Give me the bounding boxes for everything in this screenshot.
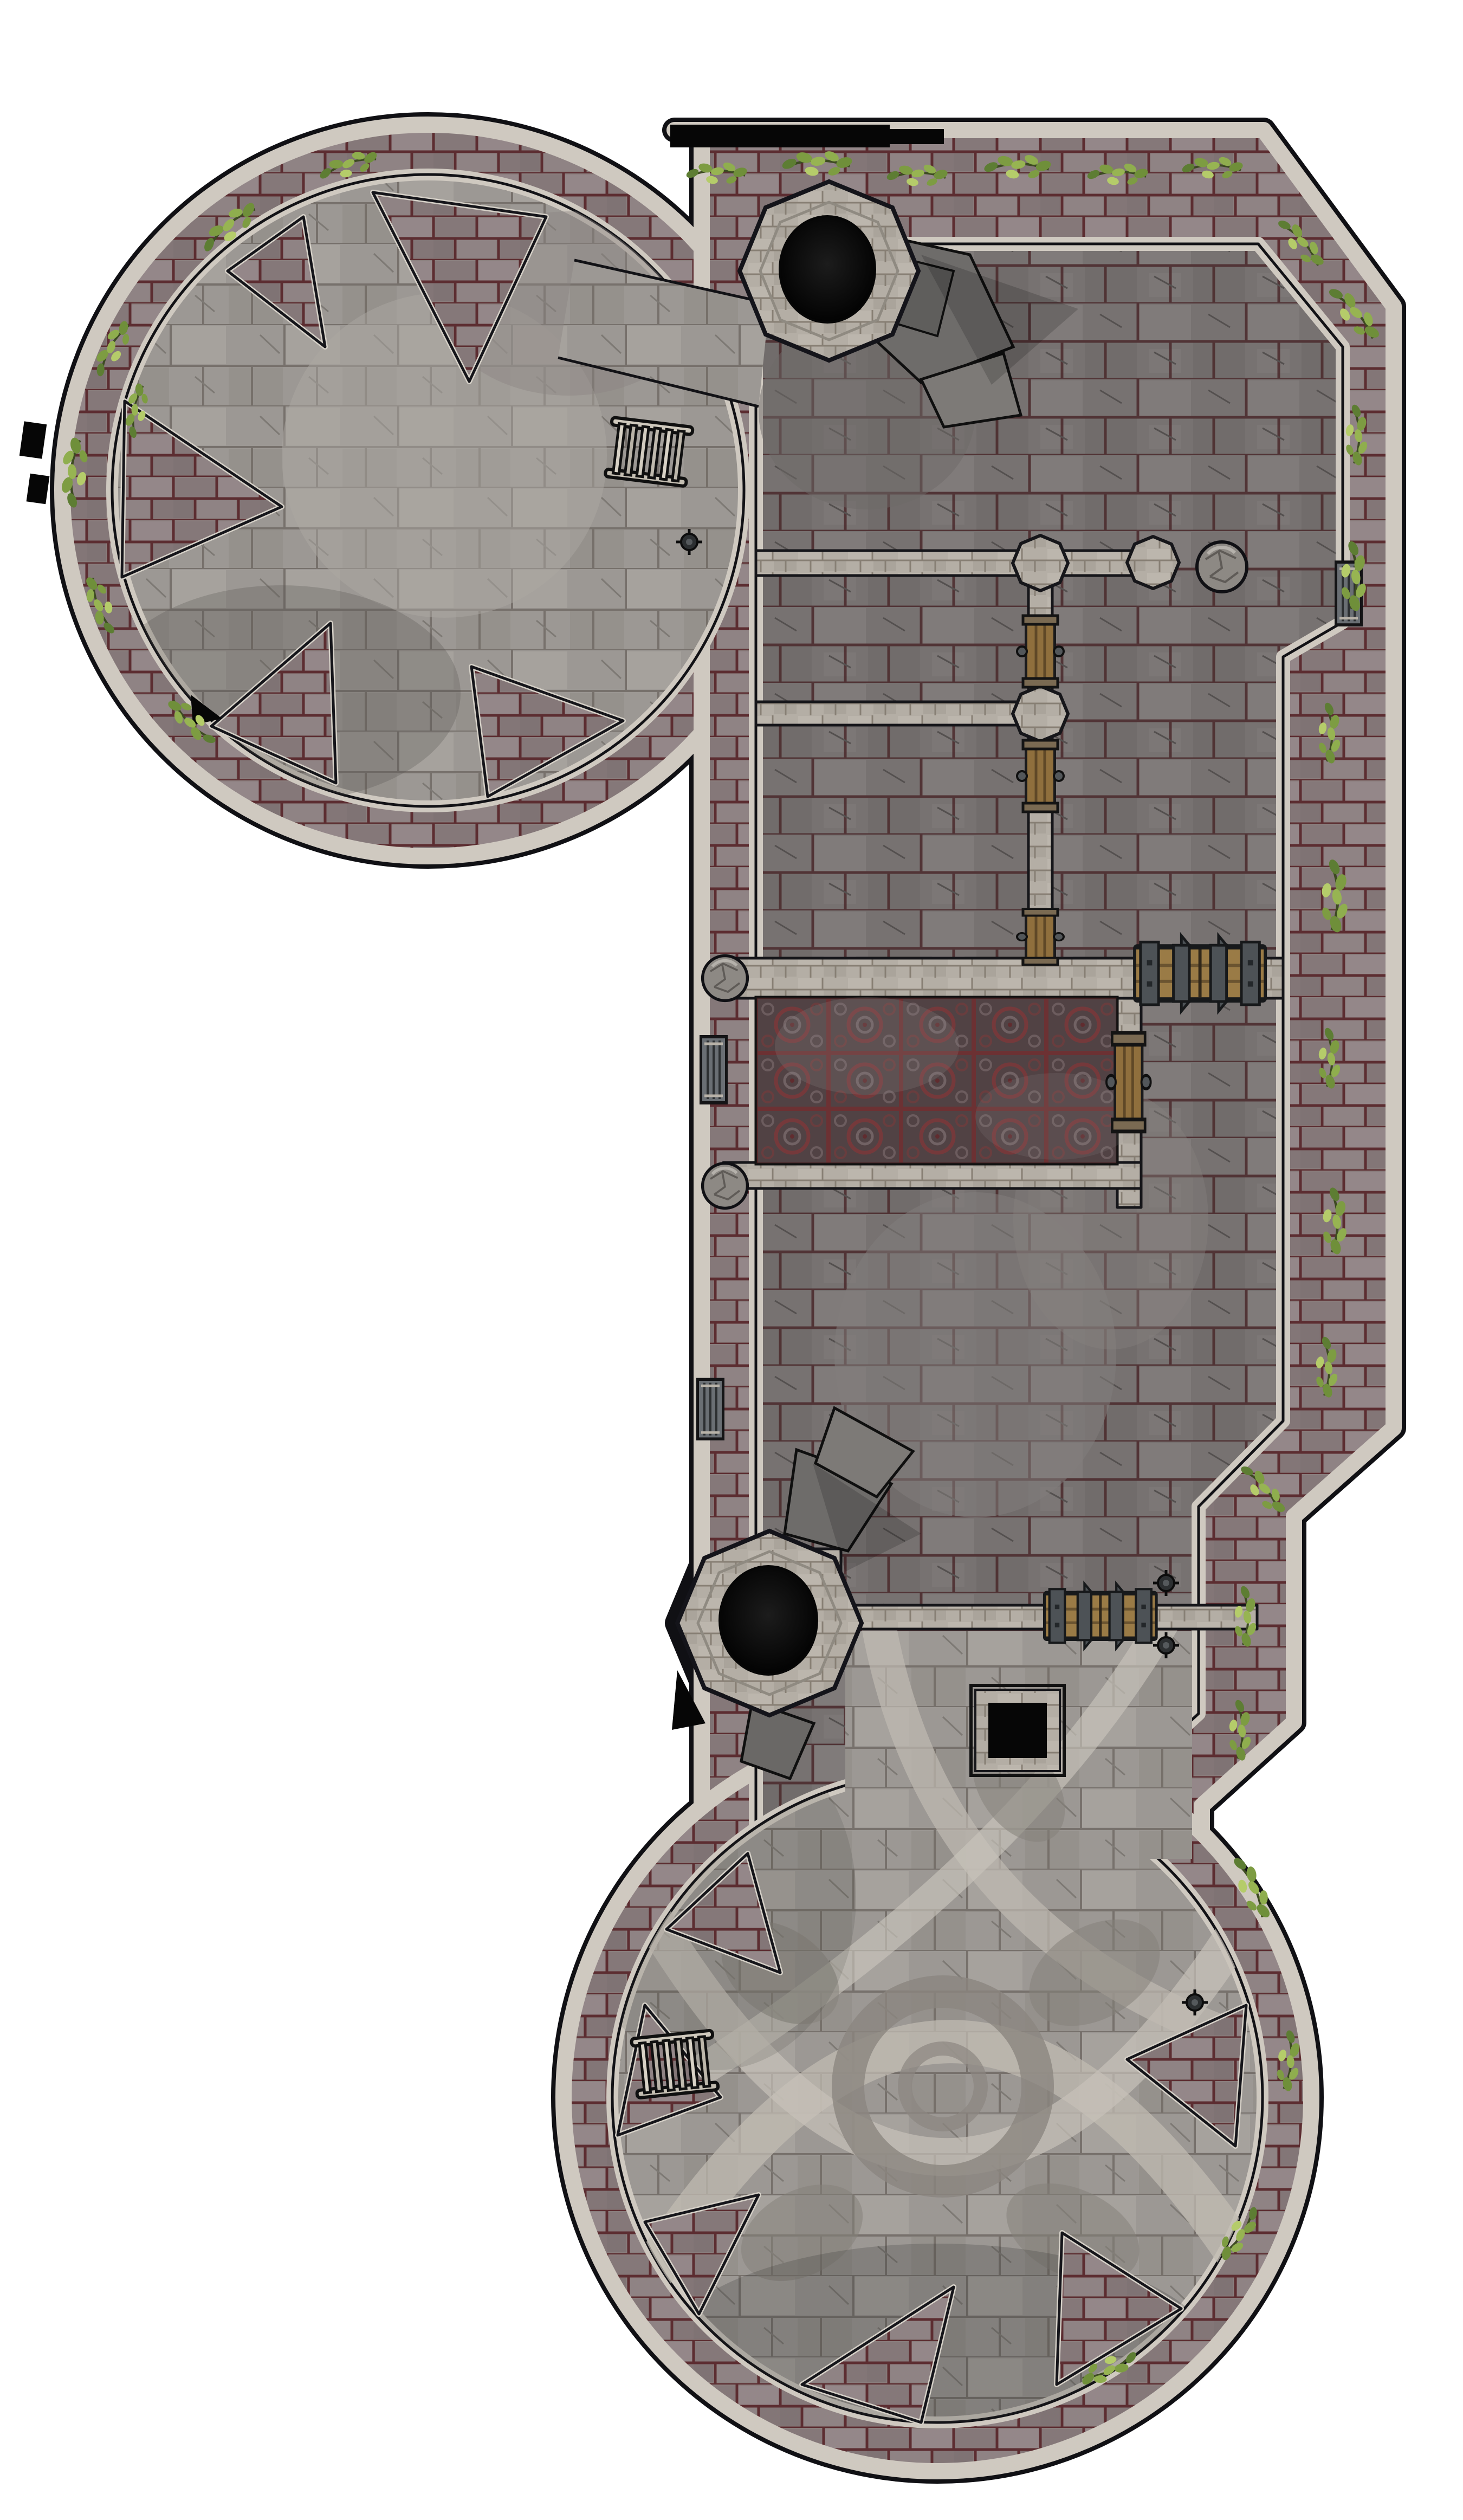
north-well-shaft[interactable] xyxy=(780,216,875,322)
floor-pit[interactable] xyxy=(971,1685,1064,1775)
west-wall-door-2[interactable] xyxy=(696,1378,724,1440)
battle-map xyxy=(0,0,1463,2520)
great-door-east[interactable] xyxy=(1133,936,1267,1011)
wall-boulder xyxy=(703,1164,748,1209)
wall-boulder xyxy=(1197,542,1247,592)
carpet-room xyxy=(756,997,1138,1164)
west-wall-door-1[interactable] xyxy=(700,1035,728,1104)
great-door-south[interactable] xyxy=(1043,1584,1158,1648)
wall-boulder xyxy=(703,956,748,1001)
south-well-shaft[interactable] xyxy=(720,1566,817,1675)
